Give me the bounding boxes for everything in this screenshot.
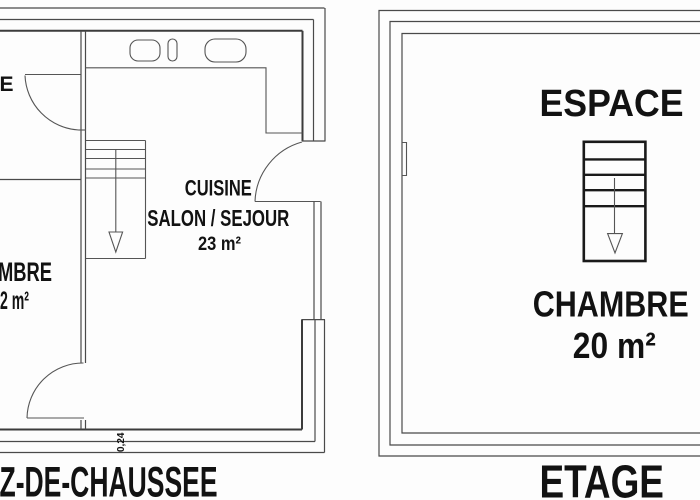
svg-text:2 m²: 2 m² — [0, 287, 29, 315]
svg-text:ESPACE: ESPACE — [540, 83, 684, 125]
svg-text:23 m²: 23 m² — [198, 234, 241, 255]
svg-text:20 m²: 20 m² — [573, 325, 656, 366]
svg-text:Z-DE-CHAUSSEE: Z-DE-CHAUSSEE — [0, 459, 218, 500]
svg-text:E: E — [0, 73, 14, 96]
svg-text:MBRE: MBRE — [0, 257, 52, 287]
svg-text:ETAGE: ETAGE — [539, 456, 664, 500]
svg-text:CHAMBRE: CHAMBRE — [533, 283, 689, 324]
svg-text:SALON / SEJOUR: SALON / SEJOUR — [147, 205, 289, 231]
svg-text:0,24: 0,24 — [116, 432, 127, 452]
svg-text:CUISINE: CUISINE — [185, 176, 252, 201]
